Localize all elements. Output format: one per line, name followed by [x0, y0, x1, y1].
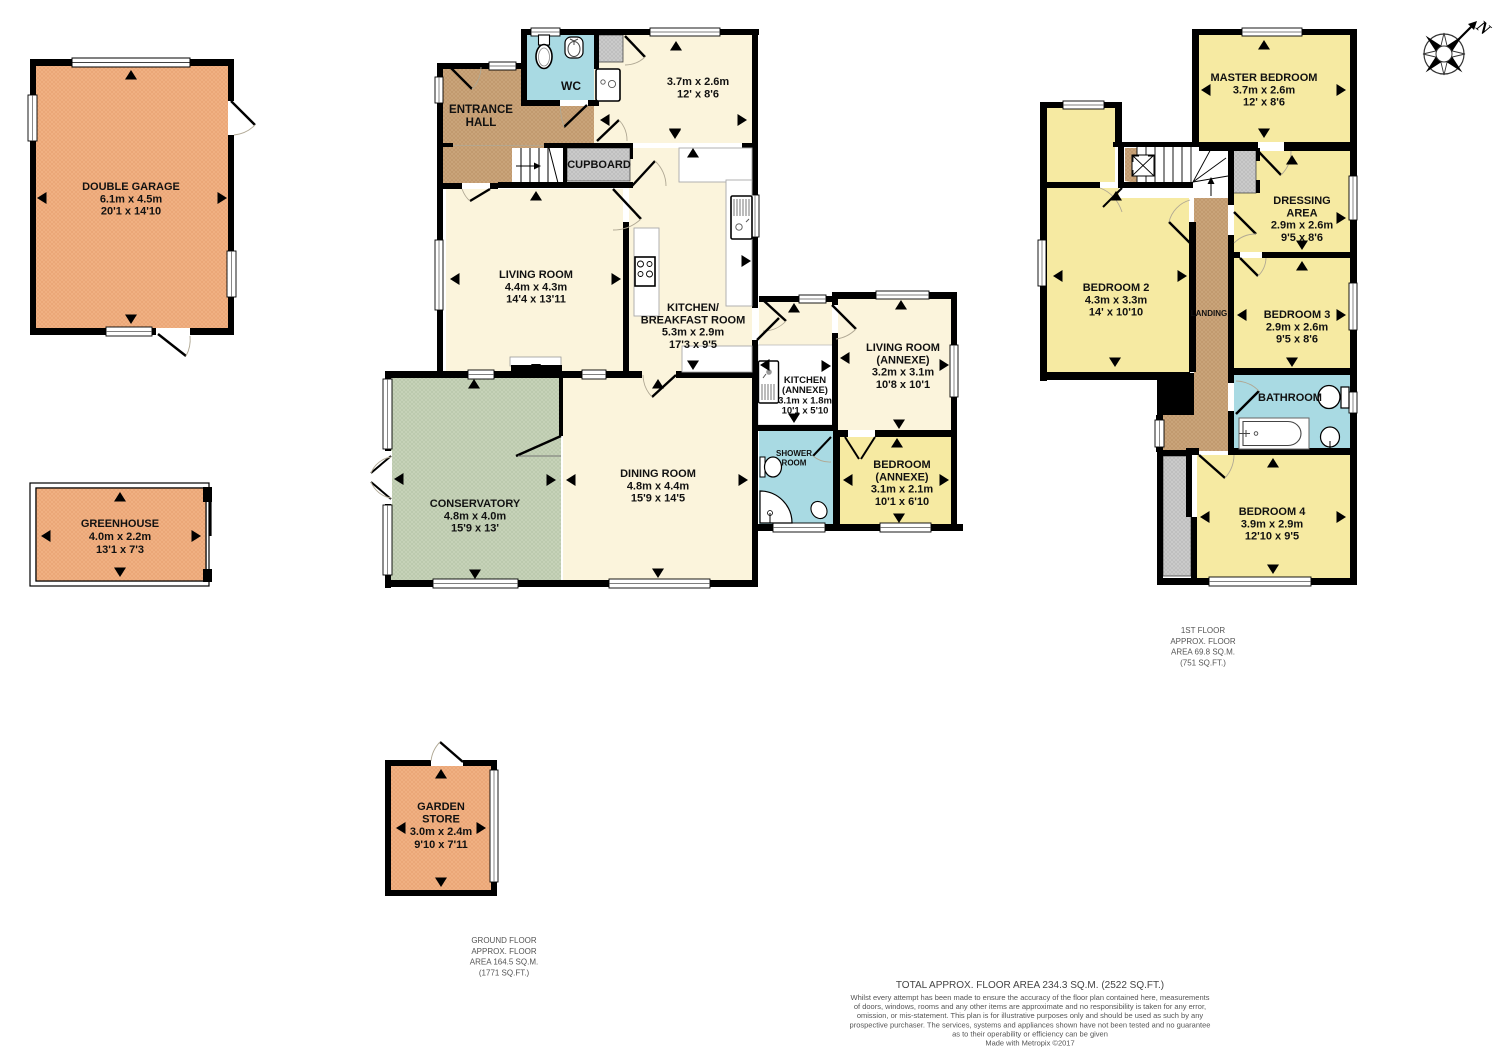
- svg-text:17'3 x 9'5: 17'3 x 9'5: [669, 339, 717, 351]
- svg-text:DOUBLE GARAGE: DOUBLE GARAGE: [82, 181, 180, 193]
- svg-text:STORE: STORE: [422, 814, 460, 826]
- svg-text:LANDING: LANDING: [1191, 309, 1227, 318]
- svg-text:BEDROOM 2: BEDROOM 2: [1083, 282, 1150, 294]
- svg-text:GROUND FLOOR: GROUND FLOOR: [471, 936, 537, 945]
- svg-text:BATHROOM: BATHROOM: [1258, 392, 1322, 404]
- svg-text:ROOM: ROOM: [782, 459, 807, 468]
- svg-text:LIVING ROOM: LIVING ROOM: [866, 342, 940, 354]
- svg-text:prospective purchaser. The ser: prospective purchaser. The services, sys…: [850, 1020, 1211, 1029]
- svg-text:10'1 x 6'10: 10'1 x 6'10: [875, 496, 929, 508]
- svg-text:(ANNEXE): (ANNEXE): [875, 471, 929, 483]
- svg-text:6.1m x 4.5m: 6.1m x 4.5m: [100, 193, 163, 205]
- svg-text:9'5 x 8'6: 9'5 x 8'6: [1276, 334, 1318, 346]
- svg-text:omission, or mis-statement. Th: omission, or mis-statement. This plan is…: [857, 1011, 1204, 1020]
- svg-text:(1771 SQ.FT.): (1771 SQ.FT.): [479, 968, 530, 977]
- svg-text:3.7m x 2.6m: 3.7m x 2.6m: [1233, 84, 1296, 96]
- svg-text:10'1 x 5'10: 10'1 x 5'10: [782, 406, 829, 417]
- svg-text:DINING ROOM: DINING ROOM: [620, 468, 696, 480]
- svg-text:20'1 x 14'10: 20'1 x 14'10: [101, 206, 161, 218]
- svg-text:3.0m x 2.4m: 3.0m x 2.4m: [410, 826, 473, 838]
- svg-text:BEDROOM: BEDROOM: [873, 459, 930, 471]
- svg-text:4.8m x 4.0m: 4.8m x 4.0m: [444, 510, 507, 522]
- svg-text:WC: WC: [561, 79, 581, 93]
- svg-text:Whilst every attempt has been: Whilst every attempt has been made to en…: [851, 993, 1210, 1002]
- svg-text:4.0m x 2.2m: 4.0m x 2.2m: [89, 531, 152, 543]
- svg-text:2.9m x 2.6m: 2.9m x 2.6m: [1266, 321, 1329, 333]
- svg-text:as to their operability or eff: as to their operability or efficiency ca…: [952, 1029, 1108, 1038]
- svg-text:2.9m x 2.6m: 2.9m x 2.6m: [1271, 220, 1334, 232]
- svg-text:DRESSING: DRESSING: [1273, 195, 1330, 207]
- svg-text:4.3m x 3.3m: 4.3m x 3.3m: [1085, 294, 1148, 306]
- svg-text:3.7m x 2.6m: 3.7m x 2.6m: [667, 76, 730, 88]
- svg-text:GREENHOUSE: GREENHOUSE: [81, 518, 159, 530]
- svg-text:12' x 8'6: 12' x 8'6: [1243, 97, 1285, 109]
- svg-text:APPROX. FLOOR: APPROX. FLOOR: [471, 947, 537, 956]
- svg-text:15'9 x 13': 15'9 x 13': [451, 523, 499, 535]
- svg-text:CUPBOARD: CUPBOARD: [567, 159, 631, 171]
- svg-text:CONSERVATORY: CONSERVATORY: [430, 498, 521, 510]
- svg-text:KITCHEN/: KITCHEN/: [667, 302, 719, 314]
- svg-text:3.2m x 3.1m: 3.2m x 3.1m: [872, 367, 935, 379]
- svg-text:MASTER BEDROOM: MASTER BEDROOM: [1211, 72, 1318, 84]
- svg-text:AREA 69.8 SQ.M.: AREA 69.8 SQ.M.: [1171, 648, 1235, 657]
- svg-text:5.3m x 2.9m: 5.3m x 2.9m: [662, 327, 725, 339]
- svg-text:3.9m x 2.9m: 3.9m x 2.9m: [1241, 518, 1304, 530]
- svg-text:BEDROOM 3: BEDROOM 3: [1264, 309, 1331, 321]
- svg-text:4.8m x 4.4m: 4.8m x 4.4m: [627, 480, 690, 492]
- svg-text:4.4m x 4.3m: 4.4m x 4.3m: [505, 281, 568, 293]
- svg-text:14'4 x 13'11: 14'4 x 13'11: [506, 294, 566, 306]
- svg-text:9'10 x 7'11: 9'10 x 7'11: [414, 839, 468, 851]
- svg-text:N: N: [1472, 16, 1495, 40]
- svg-text:15'9 x 14'5: 15'9 x 14'5: [631, 493, 685, 505]
- svg-text:of doors, windows, rooms and a: of doors, windows, rooms and any other i…: [854, 1002, 1206, 1011]
- svg-text:(751 SQ.FT.): (751 SQ.FT.): [1180, 658, 1226, 667]
- svg-text:APPROX. FLOOR: APPROX. FLOOR: [1170, 637, 1236, 646]
- svg-text:13'1 x 7'3: 13'1 x 7'3: [96, 544, 144, 556]
- svg-text:AREA: AREA: [1286, 207, 1317, 219]
- svg-text:3.1m x 2.1m: 3.1m x 2.1m: [871, 484, 934, 496]
- svg-text:12' x 8'6: 12' x 8'6: [677, 88, 719, 100]
- svg-text:12'10 x 9'5: 12'10 x 9'5: [1245, 531, 1299, 543]
- svg-text:1ST FLOOR: 1ST FLOOR: [1181, 626, 1226, 635]
- svg-text:SHOWER: SHOWER: [776, 449, 812, 458]
- svg-text:HALL: HALL: [466, 117, 497, 129]
- svg-text:9'5 x 8'6: 9'5 x 8'6: [1281, 232, 1323, 244]
- svg-text:ENTRANCE: ENTRANCE: [449, 104, 513, 116]
- svg-text:AREA 164.5 SQ.M.: AREA 164.5 SQ.M.: [470, 958, 538, 967]
- svg-text:BEDROOM 4: BEDROOM 4: [1239, 506, 1307, 518]
- svg-text:10'8 x 10'1: 10'8 x 10'1: [876, 379, 930, 391]
- svg-text:LIVING ROOM: LIVING ROOM: [499, 269, 573, 281]
- svg-text:14' x 10'10: 14' x 10'10: [1089, 307, 1143, 319]
- svg-text:(ANNEXE): (ANNEXE): [876, 354, 930, 366]
- svg-text:GARDEN: GARDEN: [417, 801, 465, 813]
- svg-text:BREAKFAST ROOM: BREAKFAST ROOM: [641, 314, 746, 326]
- svg-text:Made with Metropix ©2017: Made with Metropix ©2017: [985, 1039, 1074, 1048]
- svg-text:TOTAL APPROX. FLOOR AREA 234.3: TOTAL APPROX. FLOOR AREA 234.3 SQ.M. (25…: [896, 980, 1164, 991]
